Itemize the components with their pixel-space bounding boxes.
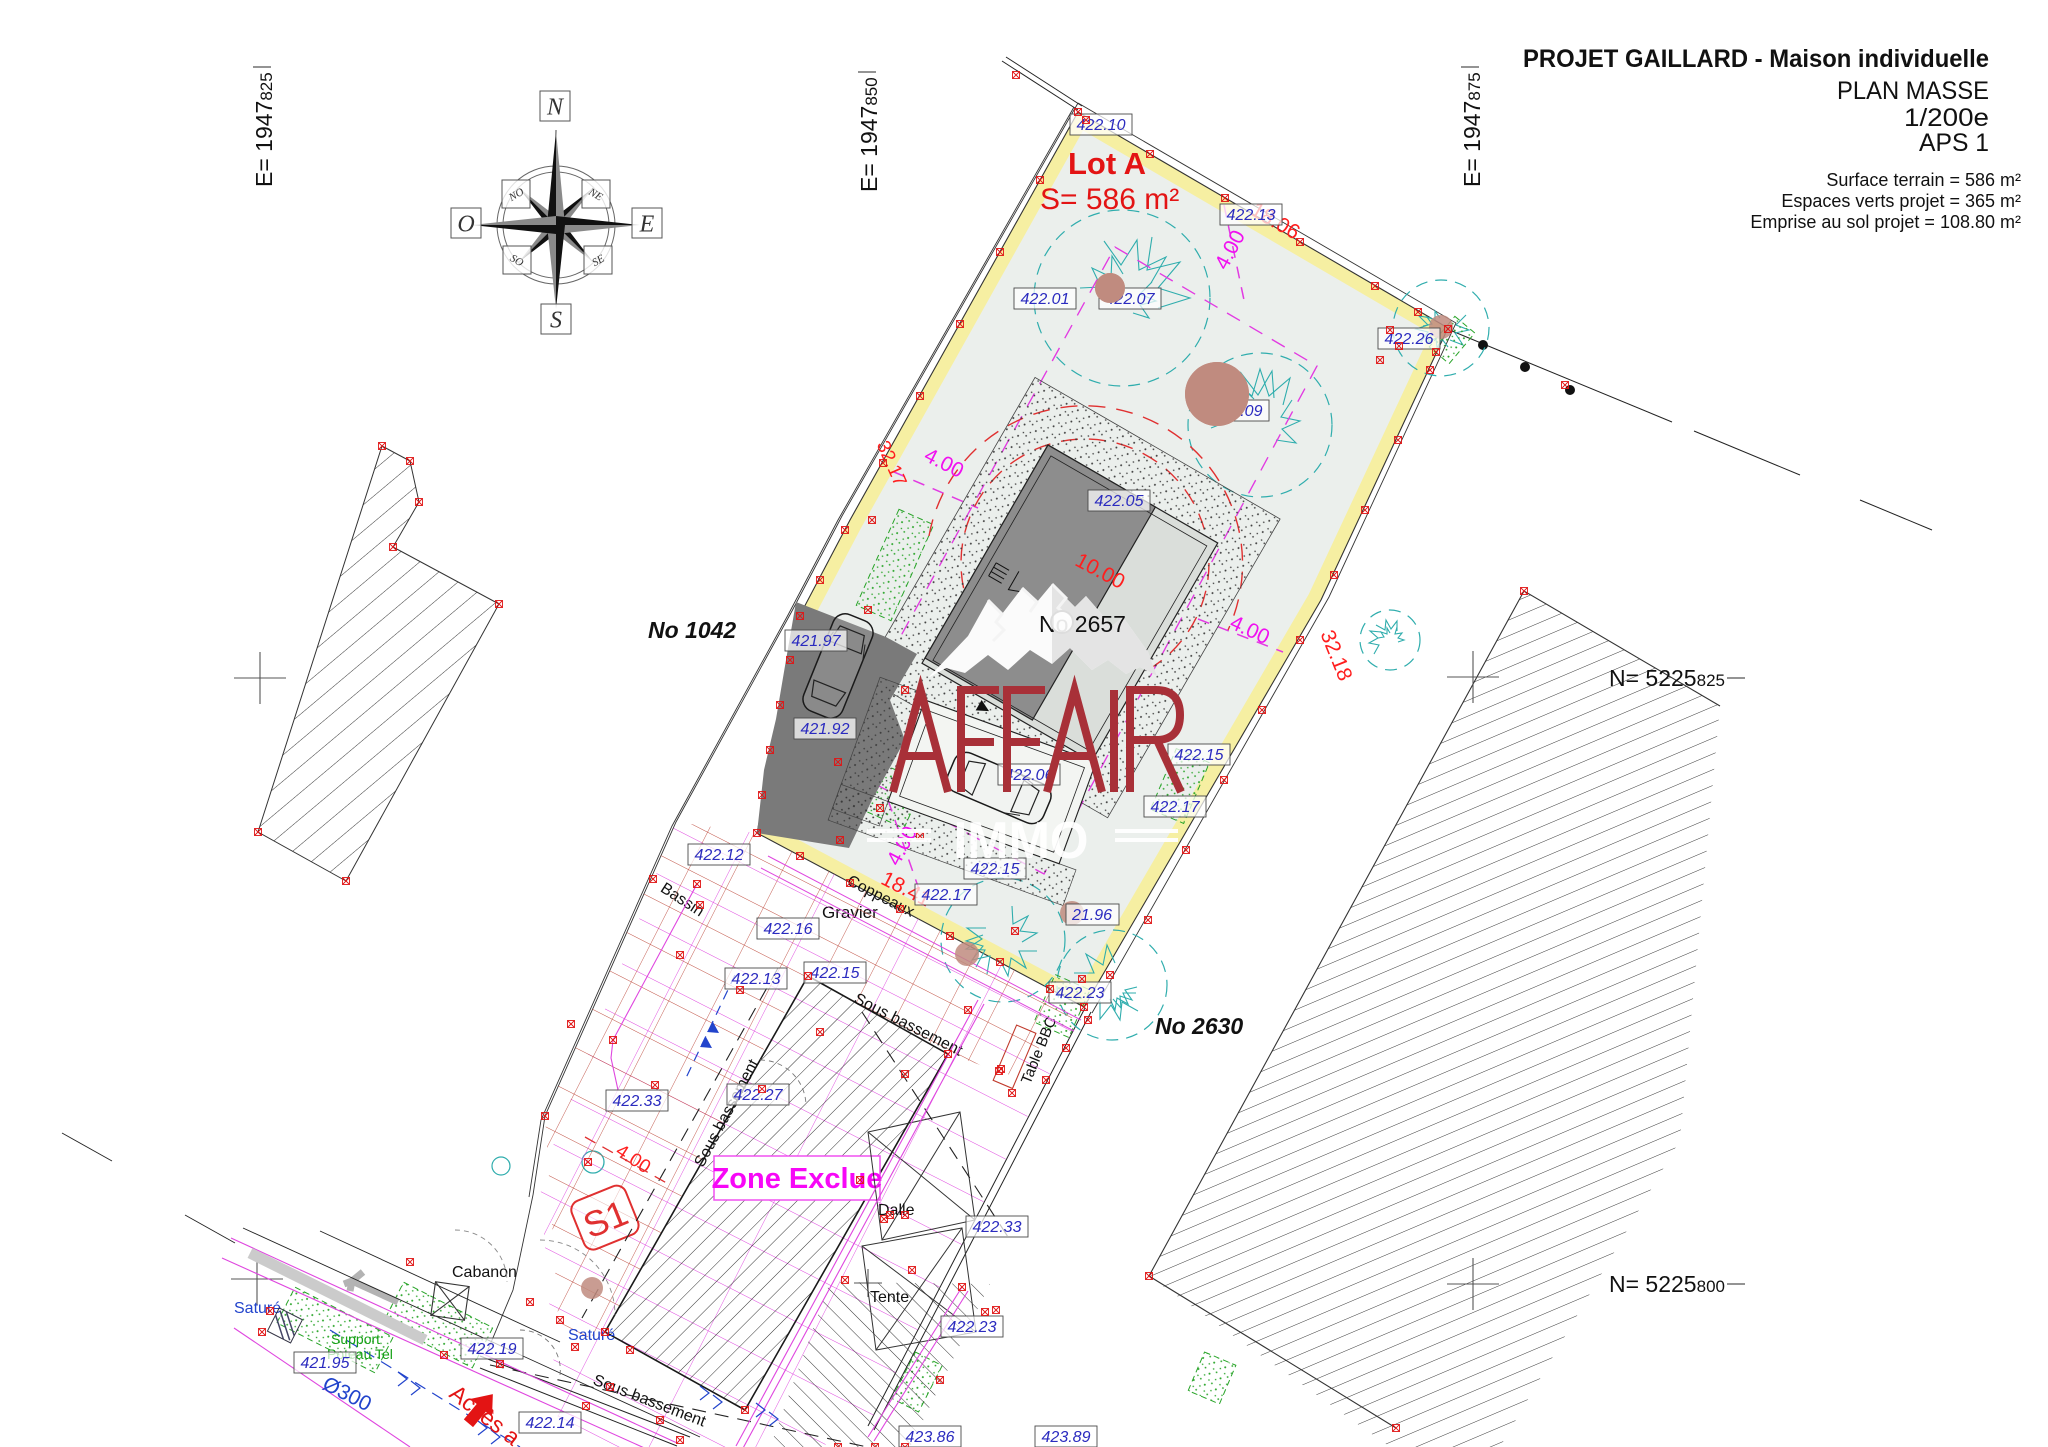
svg-text:422.33: 422.33: [973, 1219, 1022, 1236]
svg-text:422.10: 422.10: [1077, 117, 1126, 134]
svg-text:S= 586 m²: S= 586 m²: [1040, 183, 1179, 216]
svg-text:PROJET GAILLARD - Maison indiv: PROJET GAILLARD - Maison individuelle: [1523, 45, 1989, 73]
svg-text:422.15: 422.15: [811, 965, 860, 982]
svg-text:Dalle: Dalle: [878, 1202, 915, 1219]
svg-text:423.89: 423.89: [1042, 1429, 1091, 1446]
svg-text:1/200e: 1/200e: [1904, 104, 1989, 132]
svg-text:Saturé: Saturé: [234, 1300, 281, 1317]
svg-text:PLAN MASSE: PLAN MASSE: [1837, 77, 1989, 105]
svg-text:APS 1: APS 1: [1919, 129, 1989, 157]
svg-text:N: N: [546, 95, 565, 121]
svg-text:21.96: 21.96: [1071, 907, 1112, 924]
svg-text:422.33: 422.33: [613, 1093, 662, 1110]
svg-text:422.17: 422.17: [1151, 799, 1201, 816]
svg-text:422.01: 422.01: [1021, 291, 1070, 308]
svg-text:422.23: 422.23: [948, 1319, 997, 1336]
svg-text:Lot A: Lot A: [1068, 146, 1146, 181]
svg-text:422.13: 422.13: [732, 971, 781, 988]
svg-text:No 2630: No 2630: [1155, 1013, 1243, 1039]
svg-text:Emprise au sol projet = 108.80: Emprise au sol projet = 108.80 m²: [1750, 212, 2021, 232]
svg-text:422.19: 422.19: [468, 1341, 517, 1358]
svg-text:421.95: 421.95: [301, 1355, 350, 1372]
svg-text:Tente: Tente: [870, 1289, 909, 1306]
svg-text:421.97: 421.97: [792, 633, 842, 650]
svg-text:421.92: 421.92: [801, 721, 850, 738]
svg-text:No 1042: No 1042: [648, 617, 736, 643]
svg-text:422.12: 422.12: [695, 847, 744, 864]
svg-text:422.14: 422.14: [526, 1415, 575, 1432]
svg-text:422.23: 422.23: [1056, 985, 1105, 1002]
svg-text:422.05: 422.05: [1095, 493, 1144, 510]
svg-text:Espaces verts projet = 365 m²: Espaces verts projet = 365 m²: [1781, 191, 2021, 211]
svg-text:Cabanon: Cabanon: [452, 1264, 517, 1281]
svg-text:S: S: [550, 308, 562, 334]
svg-text:422.13: 422.13: [1227, 207, 1276, 224]
svg-text:Surface terrain = 586 m²: Surface terrain = 586 m²: [1826, 170, 2021, 190]
svg-text:Support: Support: [331, 1331, 380, 1347]
svg-text:422.15: 422.15: [1175, 747, 1224, 764]
svg-text:422.16: 422.16: [764, 921, 813, 938]
svg-text:IMMO: IMMO: [954, 812, 1089, 870]
svg-text:422.17: 422.17: [922, 887, 972, 904]
svg-text:423.86: 423.86: [906, 1429, 955, 1446]
svg-text:E: E: [639, 212, 655, 238]
svg-text:O: O: [457, 212, 474, 238]
